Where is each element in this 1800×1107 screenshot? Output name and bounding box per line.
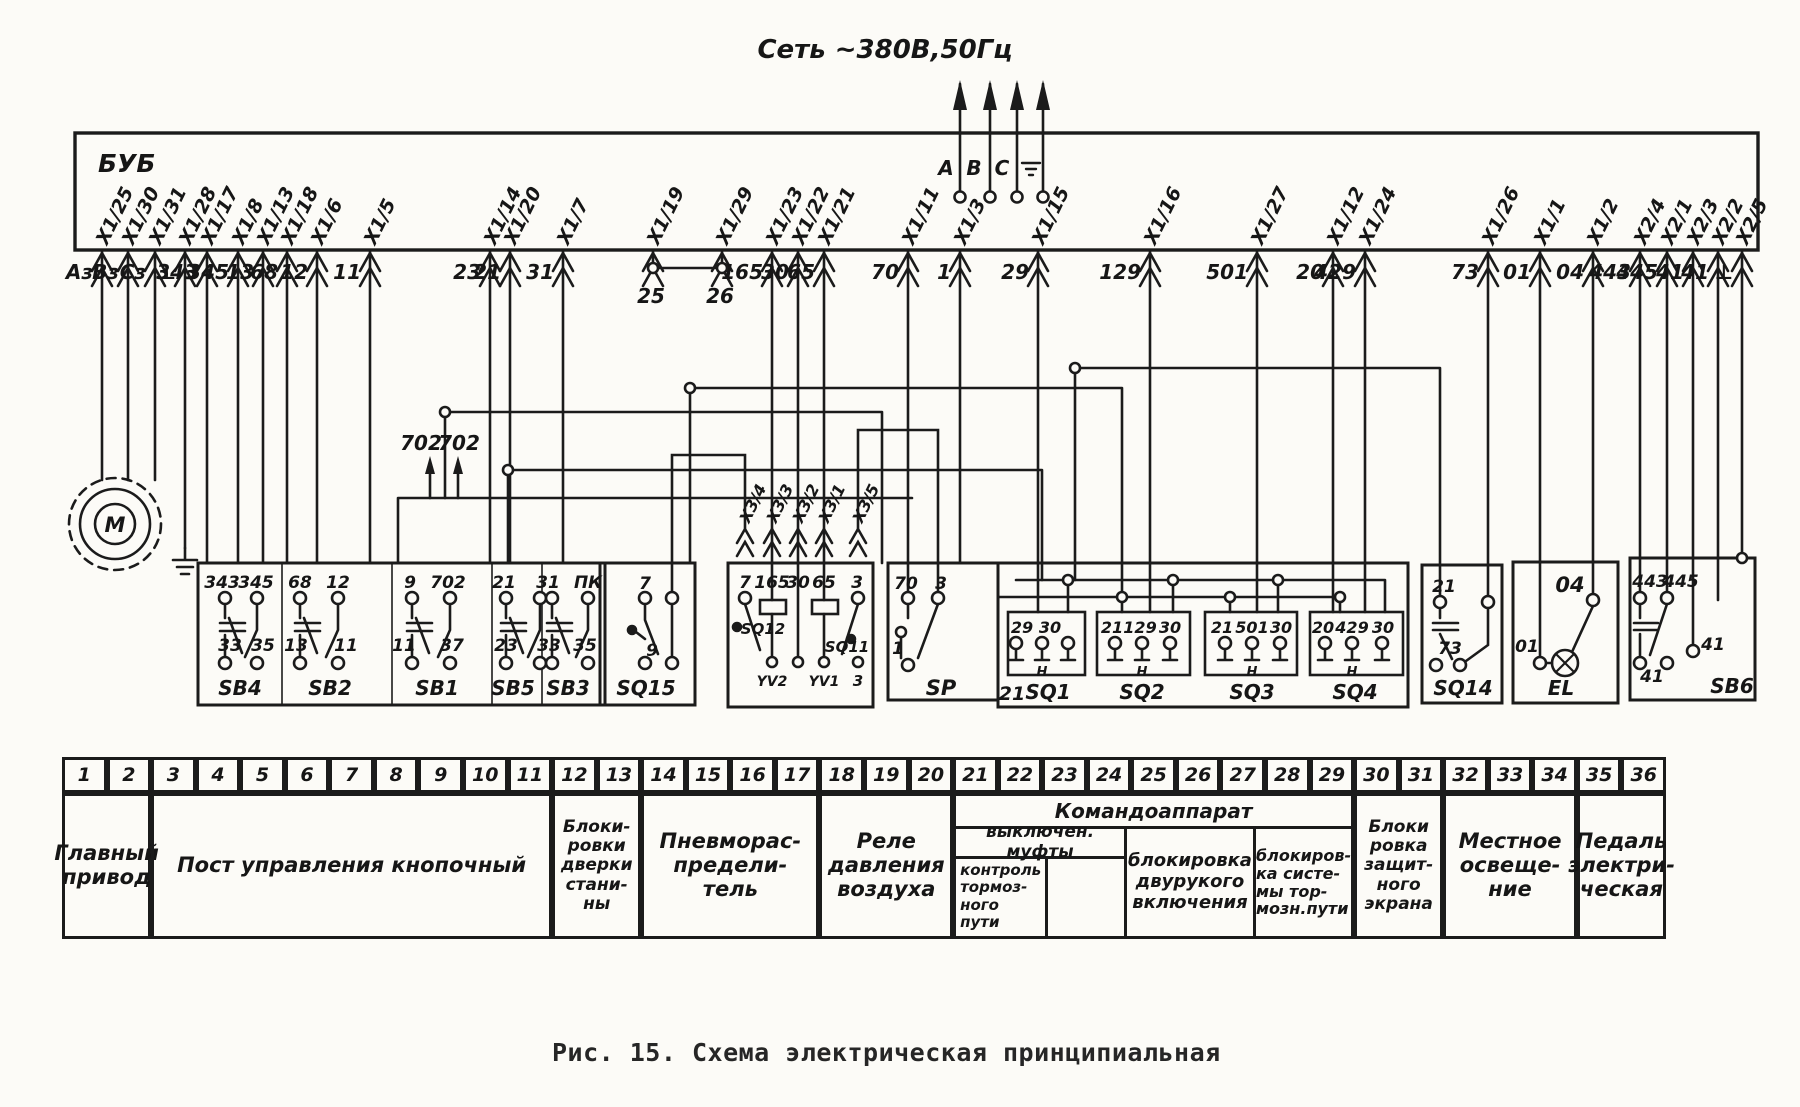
terminal-circle (251, 657, 263, 669)
component-name: SQ15 (616, 676, 675, 700)
component-name: SQ3 (1229, 680, 1274, 704)
wire-number: 11 (333, 260, 361, 284)
legend-col-number: 31 (1399, 757, 1444, 793)
legend-col-number: 34 (1532, 757, 1577, 793)
pin-label: 21 (1432, 577, 1456, 597)
pin-label: 01 (1515, 637, 1539, 657)
terminal-circle (1274, 637, 1286, 649)
pin-label: 33 (537, 636, 561, 656)
terminal-circle (1117, 592, 1127, 602)
terminal-circle (666, 592, 678, 604)
legend-col-number: 20 (909, 757, 954, 793)
component-name: SB3 (546, 676, 590, 700)
legend-col-number: 11 (508, 757, 553, 793)
terminal-label: X1/3 (949, 195, 990, 249)
pin-label: ПК (574, 573, 603, 593)
terminal-circle (332, 657, 344, 669)
pin-label: 35 (573, 636, 597, 656)
pin-label: 68 (288, 573, 312, 593)
terminal-circle (767, 657, 777, 667)
schematic-page: X1/25АзX1/30ВзX1/31СзX1/28⊥X1/17343X1/83… (0, 0, 1800, 1107)
network-title: Сеть ~380В,50Гц (757, 35, 1012, 65)
legend-local-light: Местное освеще- ние (1443, 793, 1577, 939)
terminal-circle (819, 657, 829, 667)
terminal-label: X1/19 (642, 183, 689, 249)
legend-brake-system: блокиров- ка систе- мы тор- мозн.пути (1256, 829, 1351, 936)
terminal-circle (251, 592, 263, 604)
terminal-circle (1164, 637, 1176, 649)
component-name: SB1 (415, 676, 459, 700)
wire-number: ⊥ (1715, 260, 1733, 284)
terminal-circle (503, 465, 513, 475)
legend-col-number: 24 (1087, 757, 1132, 793)
wire-number: 73 (1451, 260, 1479, 284)
pin-label: 12 (326, 573, 350, 593)
legend-col-number: 15 (686, 757, 731, 793)
cam-h-label: Н (1247, 665, 1258, 680)
wire-number: 04 (1556, 260, 1584, 284)
terminal-label: X1/2 (1582, 195, 1623, 249)
phase-a-label: A (936, 156, 953, 180)
wire-number: 41 (1680, 260, 1709, 284)
legend-col-number: 26 (1176, 757, 1221, 793)
terminal-label: X1/15 (1027, 183, 1074, 249)
terminal-circle (1319, 637, 1331, 649)
terminal-circle (985, 192, 996, 203)
legend-col-number: 2 (107, 757, 152, 793)
terminal-label: X1/26 (1477, 183, 1524, 249)
power-arrowheads (953, 80, 1050, 110)
wire-number: 31 (526, 260, 554, 284)
pin-label: 7 (639, 574, 651, 594)
terminal-circle (440, 407, 450, 417)
cam-h-label: Н (1137, 665, 1148, 680)
legend-commander: Командоаппарат выключен. муфты контроль … (953, 793, 1354, 939)
legend-col-number: 8 (374, 757, 419, 793)
terminal-circle (1737, 553, 1747, 563)
terminal-circle (1587, 594, 1599, 606)
cam-label: 30 (1270, 618, 1292, 637)
wire-number: 21 (473, 260, 501, 284)
legend-col-number: 4 (196, 757, 241, 793)
cam-contact-icon (1163, 649, 1177, 660)
terminal-label: X1/5 (359, 195, 400, 249)
legend-col-number: 17 (775, 757, 820, 793)
cam-label: 21 (1101, 618, 1123, 637)
cam-contact-icon (1318, 649, 1332, 660)
legend-col-number: 3 (151, 757, 196, 793)
bub-label: БУБ (98, 149, 155, 178)
cam-contact-icon (1218, 649, 1232, 660)
coil-name: YV2 (757, 674, 788, 690)
terminal-circle (294, 592, 306, 604)
cam-label: 429 (1334, 618, 1368, 637)
terminal-circle (294, 657, 306, 669)
pin-label: 65 (812, 573, 836, 593)
wire-number: Сз (120, 260, 146, 284)
wire-number: Аз (64, 260, 93, 284)
legend-col-number: 13 (597, 757, 642, 793)
cam-label: 30 (1159, 618, 1181, 637)
pin-label: 9 (646, 641, 658, 661)
terminal-circle (444, 592, 456, 604)
terminal-circle (1273, 575, 1283, 585)
pin-label: 21 (999, 683, 1025, 705)
legend-col-number: 19 (864, 757, 909, 793)
legend-table: Главный привод Пост управления кнопочный… (62, 757, 1666, 939)
pin-label: 41 (1639, 667, 1664, 687)
legend-col-number: 9 (418, 757, 463, 793)
legend-brake-check: контроль тормоз- ного пути (956, 859, 1048, 936)
goto-702-label: 702 (400, 431, 442, 455)
wire-number: 26 (706, 284, 734, 308)
terminal-circle (500, 657, 512, 669)
motor-label: М (105, 513, 126, 537)
legend-col-number: 16 (730, 757, 775, 793)
pin-label: 3 (935, 574, 947, 594)
terminal-circle (1225, 592, 1235, 602)
cam-contact-icon (1061, 649, 1075, 660)
legend-col-number: 18 (819, 757, 864, 793)
wire-number: Вз (92, 260, 119, 284)
pin-label: 3 (851, 573, 863, 593)
phase-b-label: B (966, 156, 981, 180)
terminal-circle (1010, 637, 1022, 649)
pin-label: 345 (238, 573, 274, 593)
legend-col-number: 27 (1220, 757, 1265, 793)
pin-label: 343 (204, 573, 240, 593)
cam-label: 129 (1123, 618, 1156, 637)
pin-label: 37 (440, 636, 464, 656)
cam-contact-icon (1345, 649, 1359, 660)
terminal-circle (1346, 637, 1358, 649)
wire-number: 01 (1503, 260, 1531, 284)
component-name: SQ2 (1119, 680, 1164, 704)
pin-label: 41 (1700, 635, 1725, 655)
terminal-circle (534, 657, 546, 669)
component-name: SB2 (308, 676, 352, 700)
x3-arrow-icon (850, 529, 866, 556)
component-name: SB5 (491, 676, 535, 700)
component-name: SP (926, 676, 957, 700)
terminal-circle (1136, 637, 1148, 649)
pin-label: 70 (894, 574, 918, 594)
cam-h-label: Н (1347, 665, 1358, 680)
wire-number: 30 (761, 260, 789, 284)
cam-h-label: Н (1037, 665, 1048, 680)
terminal-circle (902, 659, 914, 671)
component-name: SQ1 (1025, 680, 1070, 704)
terminal-circle (1376, 637, 1388, 649)
cam-label: 29 (1011, 618, 1033, 637)
terminal-circle (1168, 575, 1178, 585)
legend-col-number: 30 (1354, 757, 1399, 793)
cam-contact-icon (1009, 649, 1023, 660)
wire-number: 1 (937, 260, 951, 284)
pin-label: 30 (786, 573, 810, 593)
terminal-circle (406, 592, 418, 604)
component-name: SQ12 (741, 620, 785, 638)
coil-yv1-icon (812, 600, 838, 614)
terminal-label: X1/11 (897, 183, 944, 249)
terminal-circle (648, 263, 658, 273)
ground-symbol (173, 548, 197, 574)
legend-col-number: 25 (1131, 757, 1176, 793)
pin-label: 73 (1438, 639, 1462, 659)
pin-label: 1 (892, 639, 904, 659)
component-name: SQ11 (825, 638, 869, 656)
x3-arrow-icon (737, 529, 753, 556)
wire-number: 70 (871, 260, 899, 284)
pin-label: 9 (404, 573, 416, 593)
terminal-circle (853, 657, 863, 667)
terminal-circle (955, 192, 966, 203)
terminal-circle (1038, 192, 1049, 203)
legend-col-number: 5 (240, 757, 285, 793)
terminal-circle (793, 657, 803, 667)
wire-number: 25 (637, 284, 665, 308)
legend-col-number: 14 (641, 757, 686, 793)
pin-label: 33 (218, 636, 242, 656)
wire-number: 345 (187, 260, 229, 284)
wire-number: 65 (787, 260, 815, 284)
legend-air-relay: Реле давления воздуха (819, 793, 953, 939)
terminal-circle (1430, 659, 1442, 671)
cam-contact-icon (1108, 649, 1122, 660)
cam-label: 21 (1211, 618, 1233, 637)
goto-702-label: 702 (438, 431, 480, 455)
terminal-circle (582, 657, 594, 669)
legend-col-number: 1 (62, 757, 107, 793)
pin-label: 11 (392, 636, 416, 656)
pin-label: 702 (430, 573, 466, 593)
terminal-circle (546, 592, 558, 604)
terminal-circle (1246, 637, 1258, 649)
legend-control-post: Пост управления кнопочный (151, 793, 552, 939)
legend-col-number: 23 (1042, 757, 1087, 793)
legend-pedal: Педаль электри- ческая (1577, 793, 1666, 939)
terminal-circle (406, 657, 418, 669)
schematic-canvas: X1/25АзX1/30ВзX1/31СзX1/28⊥X1/17343X1/83… (0, 0, 1800, 1107)
terminal-circle (1534, 657, 1546, 669)
terminal-circle (1434, 596, 1446, 608)
legend-empty-cell (1048, 859, 1124, 936)
component-name: SB6 (1710, 674, 1754, 698)
wire-number: 29 (1001, 260, 1029, 284)
x3-label: X3/4 (735, 481, 770, 527)
legend-door-interlock: Блоки- ровки дверки стани- ны (552, 793, 641, 939)
legend-col-number: 10 (463, 757, 508, 793)
cam-label: 30 (1039, 618, 1061, 637)
terminal-circle (666, 657, 678, 669)
terminal-circle (1012, 192, 1023, 203)
wire-number: 129 (1099, 260, 1141, 284)
terminal-circle (1036, 637, 1048, 649)
terminal-circle (1335, 592, 1345, 602)
legend-col-number: 29 (1310, 757, 1355, 793)
cam-contact-icon (1245, 649, 1259, 660)
terminal-circle (332, 592, 344, 604)
cam-label: 20 (1312, 618, 1334, 637)
component-name: SB4 (218, 676, 262, 700)
figure-caption: Рис. 15. Схема электрическая принципиаль… (552, 1038, 1221, 1067)
legend-two-hand: блокировка двурукого включения (1127, 829, 1256, 936)
terminal-circle (852, 592, 864, 604)
pin-label: 11 (334, 636, 358, 656)
legend-col-number: 22 (998, 757, 1043, 793)
legend-col-number: 35 (1577, 757, 1622, 793)
pin-label: 31 (536, 573, 560, 593)
phase-c-label: C (995, 156, 1010, 180)
wire-number: 429 (1313, 260, 1356, 284)
legend-pneumo: Пневморас- предели- тель (641, 793, 819, 939)
terminal-circle (219, 657, 231, 669)
wire-number: 445 (1615, 260, 1658, 284)
legend-col-number: 12 (552, 757, 597, 793)
pin-label: 13 (284, 636, 308, 656)
terminal-circle (1062, 637, 1074, 649)
cam-contact-icon (1035, 649, 1049, 660)
legend-col-number: 28 (1265, 757, 1310, 793)
terminal-circle (1063, 575, 1073, 585)
cam-label: 501 (1235, 618, 1268, 637)
terminal-circle (1070, 363, 1080, 373)
pin-label: 445 (1662, 572, 1699, 592)
terminal-label: X1/1 (1529, 195, 1570, 249)
terminal-circle (1109, 637, 1121, 649)
wire-number: 501 (1206, 260, 1248, 284)
coil-yv2-icon (760, 600, 786, 614)
terminal-circle (739, 592, 751, 604)
legend-col-number: 21 (953, 757, 998, 793)
legend-main-drive: Главный привод (62, 793, 151, 939)
terminal-circle (685, 383, 695, 393)
cam-label: 30 (1372, 618, 1394, 637)
cam-contact-icon (1375, 649, 1389, 660)
terminal-label: X1/27 (1246, 183, 1293, 249)
legend-col-number: 7 (329, 757, 374, 793)
legend-col-number: 6 (285, 757, 330, 793)
pin-label: 23 (494, 636, 518, 656)
pin-label: 3 (853, 672, 863, 690)
terminal-circle (1687, 645, 1699, 657)
terminal-circle (219, 592, 231, 604)
terminal-circle (444, 657, 456, 669)
legend-col-number: 33 (1488, 757, 1533, 793)
terminal-label: X1/16 (1139, 183, 1186, 249)
terminal-circle (1219, 637, 1231, 649)
cam-contact-icon (1135, 649, 1149, 660)
terminal-circle (1634, 592, 1646, 604)
wire-number: 12 (280, 260, 308, 284)
ground-icon (1022, 163, 1040, 175)
pin-label: 7 (739, 573, 751, 593)
pin-label: 21 (492, 573, 516, 593)
legend-col-number: 36 (1621, 757, 1666, 793)
terminal-circle (1454, 659, 1466, 671)
pin-label: 165 (754, 573, 790, 593)
component-name: SQ14 (1433, 676, 1492, 700)
pin-label: 35 (251, 636, 275, 656)
cam-contact-icon (1273, 649, 1287, 660)
wire-number: 41 (1655, 260, 1684, 284)
wire-number: 68 (250, 260, 278, 284)
legend-col-number: 32 (1443, 757, 1488, 793)
terminal-circle (500, 592, 512, 604)
wire-number: 165 (721, 260, 763, 284)
terminal-circle (582, 592, 594, 604)
terminal-circle (1482, 596, 1494, 608)
component-name: EL (1548, 676, 1574, 700)
terminal-circle (1661, 592, 1673, 604)
component-name: SQ4 (1332, 680, 1377, 704)
terminal-circle (717, 263, 727, 273)
x3-label: X3/5 (848, 481, 883, 527)
terminal-circle (546, 657, 558, 669)
terminal-label: X1/29 (711, 183, 758, 249)
pin-label: 04 (1555, 573, 1584, 597)
terminal-circle (896, 627, 906, 637)
legend-clutch-off: выключен. муфты (956, 829, 1124, 859)
terminal-circle (534, 592, 546, 604)
coil-name: YV1 (809, 674, 840, 690)
legend-shield-interlock: Блоки ровка защит- ного экрана (1354, 793, 1443, 939)
terminal-label: X1/7 (552, 195, 594, 249)
